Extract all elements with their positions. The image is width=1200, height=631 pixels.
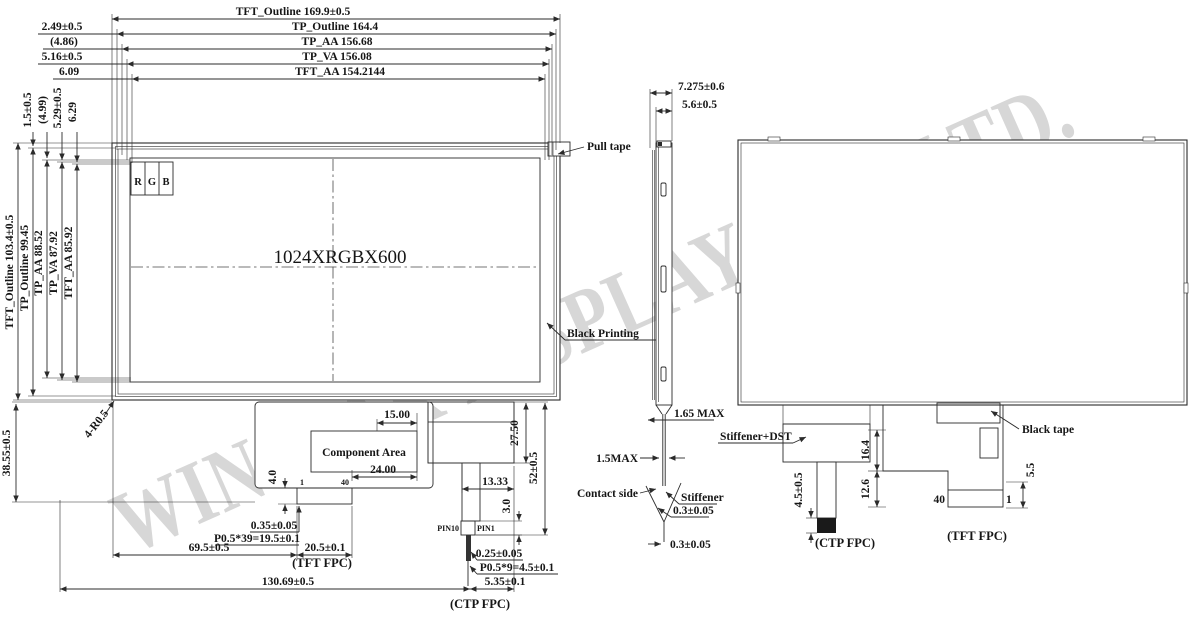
- back-panel: [738, 140, 1187, 405]
- ctp-pin-left: PIN10: [437, 524, 459, 533]
- back-top-tab-1: [768, 137, 780, 141]
- dim-offset-tft-aa: 6.09: [59, 66, 79, 78]
- dim-tp-outline-height: TP_Outline 99.45: [19, 225, 31, 312]
- tft-module-drawing: WINSTAR DISPLAY CO., LTD. R G B 1024XRGB…: [0, 0, 1200, 631]
- dim-ctp-back-45: 4.5±0.5: [793, 472, 805, 507]
- tft-fpc-back: Black tape 16.4 12.6 40 1 5.5 (TFT FPC): [860, 403, 1074, 543]
- pixel-format-label: 1024XRGBX600: [273, 247, 406, 268]
- side-mount-tab-1: [661, 183, 666, 196]
- dim-tft-outline-width: TFT_Outline 169.9±0.5: [236, 6, 351, 18]
- side-mount-tab-3: [661, 367, 666, 381]
- rgb-r-label: R: [134, 177, 142, 188]
- rgb-b-label: B: [162, 177, 169, 188]
- side-mount-tab-2: [661, 266, 666, 292]
- ctp-back-stiffener-area: [783, 424, 870, 462]
- dim-tft-aa-height: TFT_AA 85.92: [63, 226, 75, 299]
- ctp-fpc-tail-stiff: [466, 535, 471, 561]
- black-printing-label: Black Printing: [567, 328, 639, 340]
- corner-radius-label: 4-R0.5: [82, 408, 111, 441]
- dim-total-width: 130.69±0.5: [262, 576, 315, 588]
- dim-tft-outline-height: TFT_Outline 103.4±0.5: [4, 214, 16, 329]
- tft-back-stiffener-block: [980, 428, 998, 458]
- ctp-back-tail: [817, 462, 836, 518]
- dim-tp-va-width: TP_VA 156.08: [302, 51, 372, 63]
- tft-back-connector: [948, 490, 1003, 507]
- rgb-g-label: G: [148, 177, 156, 188]
- dim-ctp-tail: 5.35±0.1: [485, 576, 526, 588]
- front-top-dimensions: TFT_Outline 169.9±0.5 TP_Outline 164.4 2…: [38, 6, 560, 163]
- black-tape-label: Black tape: [1022, 424, 1074, 436]
- dim-offset-tp-aa: (4.86): [50, 36, 78, 48]
- tft-fpc-back-label: (TFT FPC): [947, 529, 1007, 543]
- display-active-area: [130, 158, 540, 382]
- ctp-fpc-label: (CTP FPC): [450, 597, 510, 611]
- dim-offset-top-tp-va: 5.29±0.5: [52, 87, 64, 128]
- pull-tape-label: Pull tape: [587, 141, 631, 153]
- dim-pin-width: 0.35±0.05: [251, 520, 298, 532]
- front-view: R G B 1024XRGBX600 Pull tape Black Print…: [1, 6, 658, 611]
- ctp-fpc-back-label: (CTP FPC): [815, 536, 875, 550]
- dim-offset-top-tp-aa: (4.99): [37, 96, 49, 124]
- dim-fpc-offset: 69.5±0.5: [189, 542, 230, 554]
- dim-thickness-panel: 5.6±0.5: [682, 99, 717, 111]
- tft-pin-first: 1: [300, 478, 304, 487]
- rgb-pixel-boxes: R G B: [131, 162, 173, 195]
- dim-component-24: 24.00: [370, 464, 396, 476]
- dim-thickness-total: 7.275±0.6: [678, 81, 725, 93]
- back-right-tab: [1184, 283, 1188, 293]
- ctp-pin-right: PIN1: [477, 524, 495, 533]
- tft-back-pin-1: 1: [1006, 494, 1012, 506]
- contact-side-label: Contact side: [577, 488, 638, 500]
- dim-fpc-165: 1.65 MAX: [674, 408, 725, 420]
- tft-pin-last: 40: [341, 478, 349, 487]
- back-view: Stiffener+DST 4.5±0.5 (CTP FPC) Black ta…: [718, 137, 1188, 550]
- dim-tft-back-55: 5.5: [1025, 463, 1037, 478]
- ctp-fpc-pin-strip: [461, 521, 475, 535]
- dim-ctp-2750: 27.50: [509, 420, 521, 446]
- stiffener-dst-label: Stiffener+DST: [720, 431, 792, 443]
- pull-tape: Pull tape: [548, 141, 631, 156]
- dim-tft-back-164: 16.4: [860, 440, 872, 460]
- ctp-back-connector-end: [817, 518, 836, 533]
- dim-bottom-height: 38.55±0.5: [1, 429, 13, 476]
- dim-03-lower: 0.3±0.05: [670, 539, 711, 551]
- component-area-label: Component Area: [322, 447, 406, 459]
- dim-fpc-15: 1.5MAX: [596, 453, 639, 465]
- tft-back-pin-40: 40: [934, 494, 946, 506]
- dim-ctp-1333: 13.33: [482, 476, 508, 488]
- dim-tp-va-height: TP_VA 87.92: [48, 231, 60, 295]
- ctp-fpc-back: Stiffener+DST 4.5±0.5 (CTP FPC): [718, 405, 875, 550]
- dim-ctp-3: 3.0: [501, 499, 513, 514]
- dim-offset-top-tft-aa: 6.29: [67, 102, 79, 122]
- dim-ctp-pitch: P0.5*9=4.5±0.1: [480, 562, 555, 574]
- tft-fpc-label: (TFT FPC): [292, 556, 352, 570]
- back-top-tab-2: [948, 137, 960, 141]
- black-tape-area: [937, 403, 1000, 423]
- dim-offset-tp-va: 5.16±0.5: [42, 51, 83, 63]
- side-taper: [656, 405, 672, 414]
- dim-tp-outline-width: TP_Outline 164.4: [292, 21, 379, 33]
- dim-tft-back-126: 12.6: [860, 479, 872, 499]
- dim-tp-aa-width: TP_AA 156.68: [302, 36, 373, 48]
- back-left-tab: [736, 283, 740, 293]
- back-top-tab-3: [1143, 137, 1155, 141]
- ctp-fpc-tail: [462, 463, 480, 521]
- dim-ctp-pin-width: 0.25±0.05: [476, 548, 523, 560]
- ctp-back-dotted-band: [783, 405, 870, 424]
- dim-fpc-width: 20.5±0.1: [305, 542, 346, 554]
- tft-back-outline: [883, 405, 1003, 490]
- dim-ctp-52: 52±0.5: [528, 452, 540, 484]
- stiffener-label: Stiffener: [681, 492, 724, 504]
- drawing-sheet: WINSTAR DISPLAY CO., LTD. R G B 1024XRGB…: [0, 0, 1200, 631]
- dim-03-upper: 0.3±0.05: [673, 505, 714, 517]
- dim-tft-aa-width: TFT_AA 154.2144: [295, 66, 385, 78]
- dim-offset-top-tp-outline: 1.5±0.5: [22, 92, 34, 127]
- dim-offset-tp-outline: 2.49±0.5: [42, 21, 83, 33]
- dim-component-15: 15.00: [384, 409, 410, 421]
- dim-tp-aa-height: TP_AA 88.52: [33, 230, 45, 295]
- dim-pin-height-4: 4.0: [267, 470, 279, 485]
